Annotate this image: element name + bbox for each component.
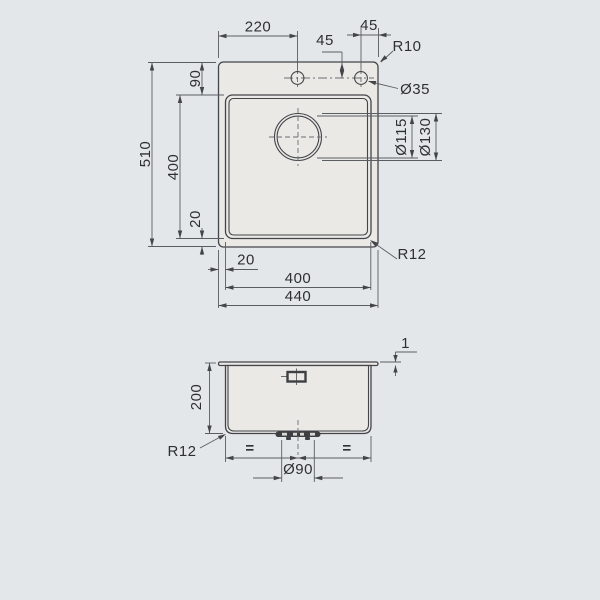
dim-510-label: 510: [137, 141, 154, 168]
dia115-label: Ø115: [393, 118, 410, 156]
dim-200-label: 200: [188, 384, 205, 411]
dim-45-offset-label: 45: [316, 32, 334, 49]
equal-left-label: =: [245, 440, 254, 457]
r10-label: R10: [392, 38, 421, 55]
r12-top-label: R12: [397, 246, 426, 263]
r12-front-label: R12: [167, 443, 196, 460]
dim-400-bottom-label: 400: [285, 270, 312, 287]
technical-drawing-page: 220 45 45 R10 Ø35: [0, 0, 600, 600]
dia90-label: Ø90: [283, 461, 313, 478]
dim-90-label: 90: [187, 70, 204, 88]
dia130-label: Ø130: [417, 118, 434, 157]
dim-440-label: 440: [285, 288, 312, 305]
dim-400-left-label: 400: [165, 154, 182, 181]
dim-220-label: 220: [245, 19, 272, 36]
dim-20-vertical-label: 20: [187, 210, 204, 228]
dim-45-edge-label: 45: [360, 17, 378, 34]
sink-dimension-drawing: 220 45 45 R10 Ø35: [0, 0, 600, 600]
dia35-label: Ø35: [400, 81, 430, 98]
equal-right-label: =: [342, 440, 351, 457]
dim-20-horizontal-label: 20: [237, 252, 255, 269]
dim-1-label: 1: [401, 335, 410, 352]
